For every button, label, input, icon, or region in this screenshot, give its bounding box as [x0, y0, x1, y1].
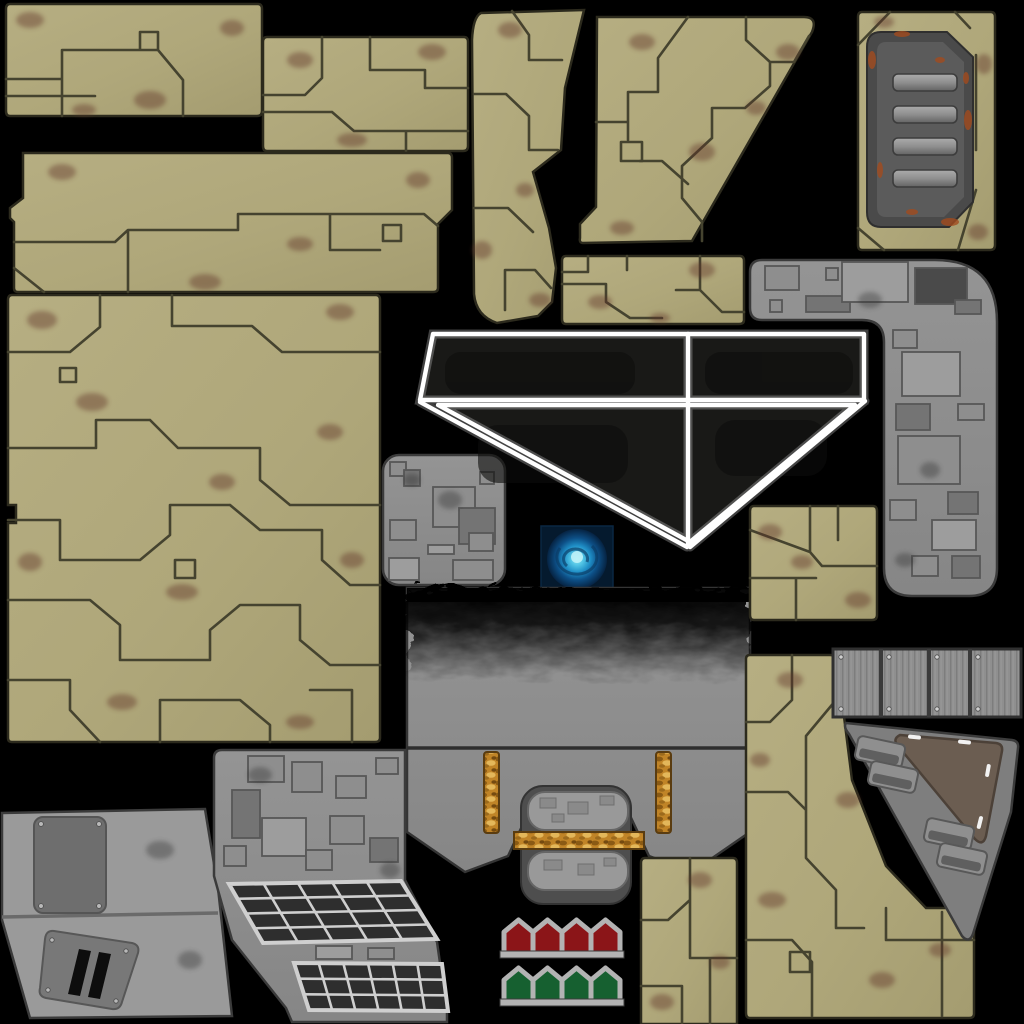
tan-bar-g: [562, 256, 744, 324]
texture-atlas-canvas: [0, 0, 1024, 1024]
rusty-door-panel-h: [858, 12, 995, 250]
gold-crossbar: [514, 832, 644, 849]
tan-hull-strip-c: [10, 153, 452, 292]
atlas-svg: [0, 0, 1024, 1024]
ribbed-strip-u: [833, 649, 1021, 717]
engine-block-m: [407, 588, 750, 904]
cargo-pod-assembly: [514, 786, 644, 904]
tan-hull-panel-b: [263, 37, 468, 151]
gray-wing-n: [2, 809, 232, 1018]
tan-bar-r: [641, 858, 737, 1024]
wing-inset-plate: [34, 817, 106, 913]
tan-square-v: [750, 506, 877, 620]
tan-hull-large-d: [8, 295, 380, 742]
solar-grid-1: [229, 881, 437, 943]
door-face: [877, 42, 964, 217]
wing-vent: [40, 931, 139, 1009]
solar-grid-2: [294, 963, 448, 1011]
tan-hull-panel-a: [6, 4, 262, 116]
energy-orb-l: [541, 526, 613, 592]
